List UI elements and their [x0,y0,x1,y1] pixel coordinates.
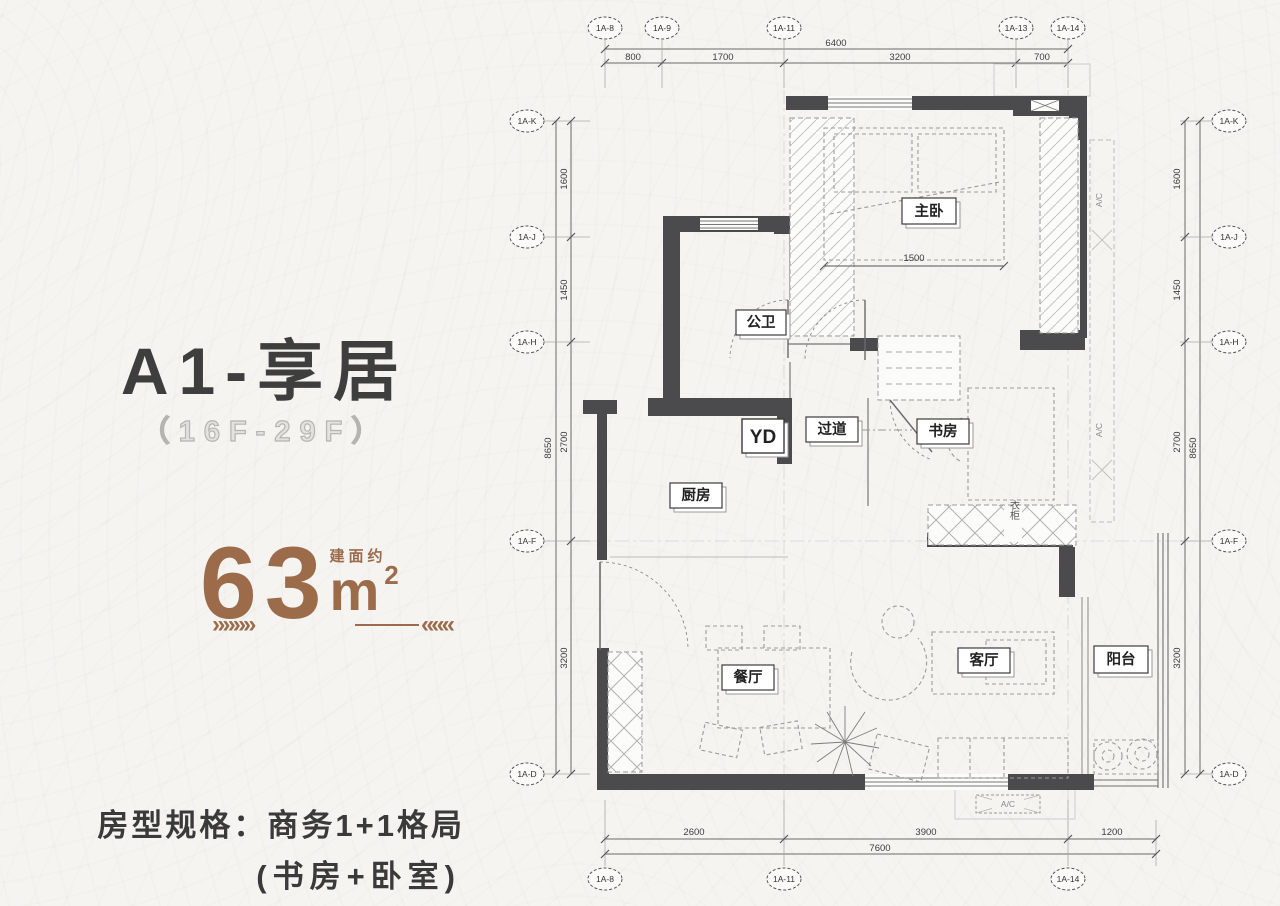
ac-side-label-lower: A/C [1094,423,1104,437]
dim-left-seg3: 3200 [559,647,570,668]
floor-plan: 6400 800 1700 3200 700 2600 3900 1200 76… [0,0,1280,906]
exterior-ledges [955,64,1114,819]
dimension-ticks [552,45,1204,858]
room-label-master-bedroom: 主卧 [902,198,960,228]
room-label-dining: 餐厅 [722,665,778,694]
grid-left-1: 1A-J [518,232,535,242]
dim-bottom-seg1: 3900 [915,827,936,838]
svg-text:餐厅: 餐厅 [734,668,763,686]
dim-left-seg0: 1600 [559,168,570,189]
grid-top-0: 1A-8 [596,23,614,33]
ac-side-label-upper: A/C [1094,193,1104,207]
wardrobe-label: 衣柜 [1008,499,1020,521]
svg-text:YD: YD [750,427,776,448]
grid-right-0: 1A-K [1220,116,1239,126]
room-label-balcony: 阳台 [1094,646,1152,677]
grid-right-4: 1A-D [1219,769,1238,779]
room-labels: 主卧 公卫 YD 过道 书房 厨房 餐厅 [670,198,1152,694]
dim-right-seg2: 2700 [1172,431,1183,452]
svg-text:过道: 过道 [818,420,847,438]
grid-top-3: 1A-13 [1005,23,1028,33]
grid-top-4: 1A-14 [1057,23,1080,33]
dim-left-total: 8650 [543,437,554,458]
dimension-lines [556,49,1200,854]
svg-text:公卫: 公卫 [747,314,776,331]
bed-width-value: 1500 [903,253,924,264]
room-label-living: 客厅 [958,648,1014,677]
grid-bottom-2: 1A-14 [1057,874,1080,884]
dim-left-seg1: 1450 [559,279,570,300]
dim-right-seg0: 1600 [1172,168,1183,189]
grid-top-2: 1A-11 [773,23,795,33]
dim-right-seg3: 3200 [1172,647,1183,668]
dim-right-total: 8650 [1188,437,1199,458]
grid-left-3: 1A-F [518,536,536,546]
dim-top-seg2: 3200 [889,52,910,63]
room-label-corridor: 过道 [806,417,862,446]
svg-text:主卧: 主卧 [915,202,944,220]
dim-left-seg2: 2700 [559,431,570,452]
dim-top-seg0: 800 [625,52,641,63]
svg-text:厨房: 厨房 [682,486,711,504]
grid-left-2: 1A-H [517,337,536,347]
grid-axis-lines [590,90,1180,828]
grid-left-4: 1A-D [517,769,536,779]
room-label-kitchen: 厨房 [670,483,726,512]
grid-bottom-0: 1A-8 [596,874,614,884]
grid-left-0: 1A-K [518,116,537,126]
svg-text:阳台: 阳台 [1107,650,1136,668]
grid-right-1: 1A-J [1220,232,1237,242]
room-label-bathroom: 公卫 [736,310,790,339]
room-label-study: 书房 [917,419,973,448]
grid-right-2: 1A-H [1219,337,1238,347]
svg-text:书房: 书房 [929,422,958,440]
dim-bottom-total: 7600 [869,843,890,854]
room-label-duct: YD [742,419,788,457]
dim-top-total: 6400 [825,38,846,49]
dim-right-seg1: 1450 [1172,279,1183,300]
ac-platform-label: A/C [1001,799,1015,809]
dim-bottom-seg0: 2600 [683,827,704,838]
dim-top-seg3: 700 [1034,52,1050,63]
grid-bottom-1: 1A-11 [773,874,795,884]
dim-bottom-seg2: 1200 [1101,827,1122,838]
dim-top-seg1: 1700 [712,52,733,63]
grid-right-3: 1A-F [1220,536,1238,546]
svg-text:客厅: 客厅 [969,651,999,669]
grid-top-1: 1A-9 [653,23,671,33]
